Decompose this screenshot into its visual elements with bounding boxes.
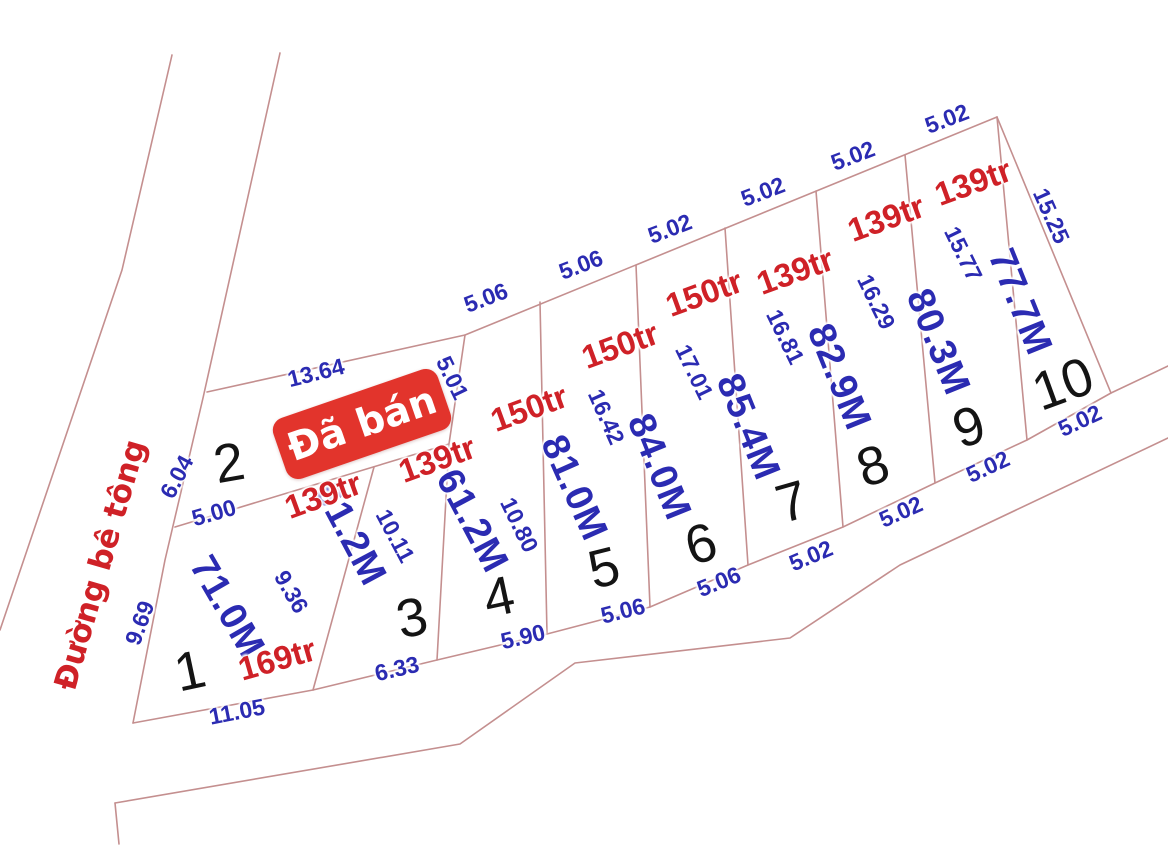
lower-road-tick — [115, 803, 119, 844]
parcel-boundary-drawing — [0, 0, 1168, 852]
lower-road-line — [115, 438, 1168, 803]
road-left-line — [0, 55, 172, 630]
land-plot-diagram: Đường bê tông 13.64 5.01 5.06 5.06 5.02 … — [0, 0, 1168, 852]
